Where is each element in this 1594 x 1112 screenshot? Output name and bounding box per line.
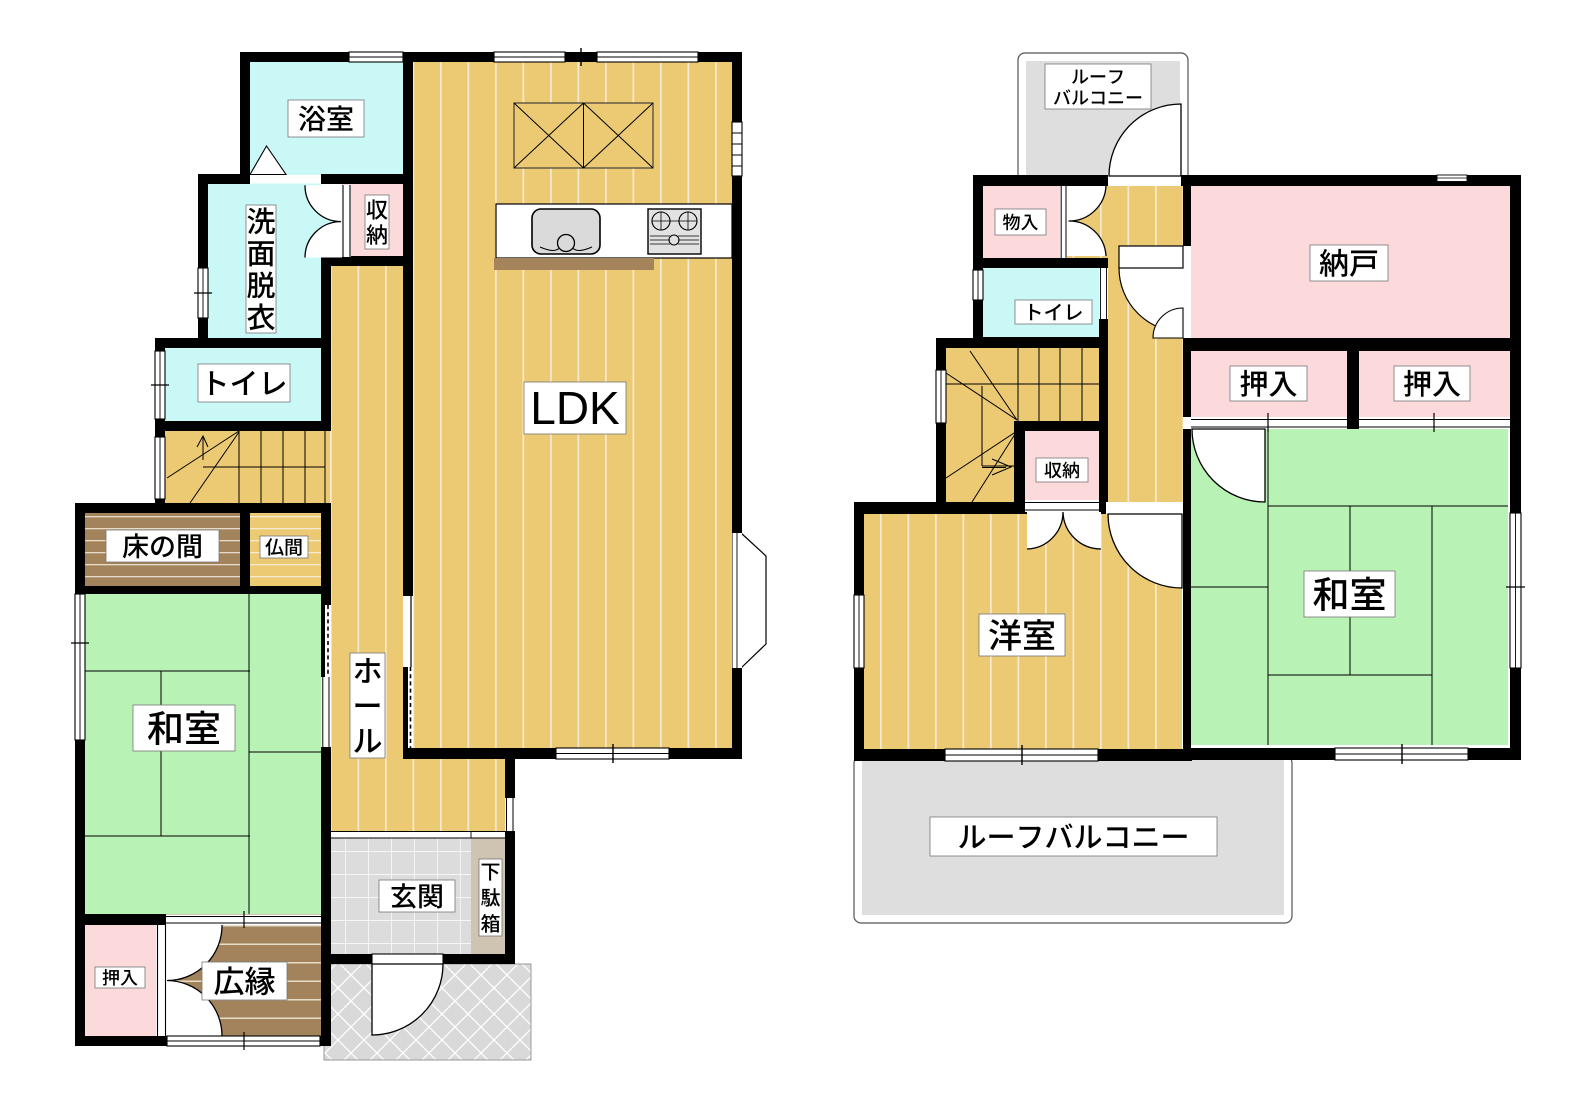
svg-text:LDK: LDK	[530, 382, 620, 434]
